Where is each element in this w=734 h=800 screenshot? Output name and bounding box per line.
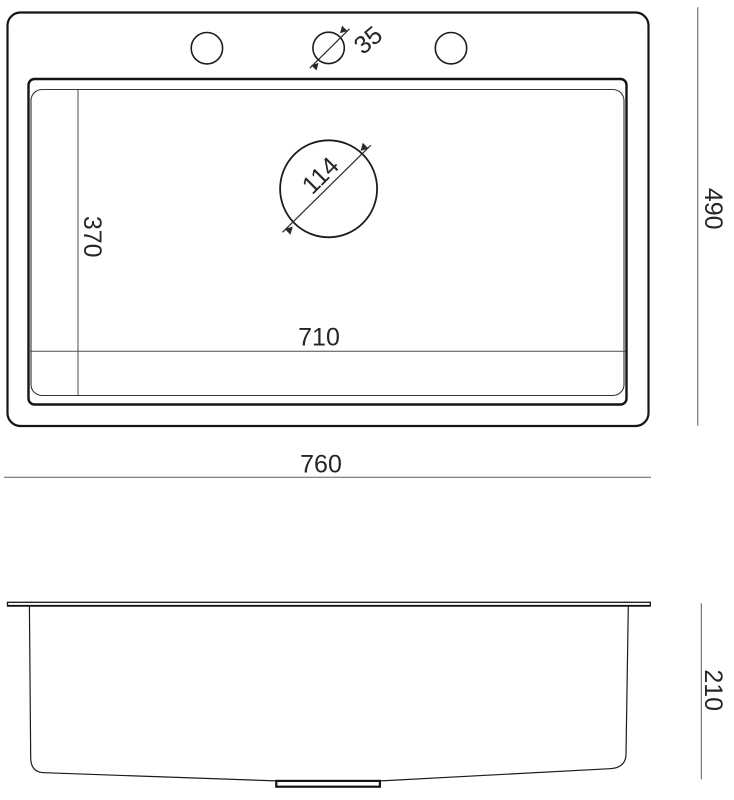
svg-text:760: 760 [300,451,342,479]
svg-text:490: 490 [699,188,727,230]
svg-text:210: 210 [699,669,727,711]
svg-text:370: 370 [78,216,106,258]
svg-text:710: 710 [298,323,340,351]
